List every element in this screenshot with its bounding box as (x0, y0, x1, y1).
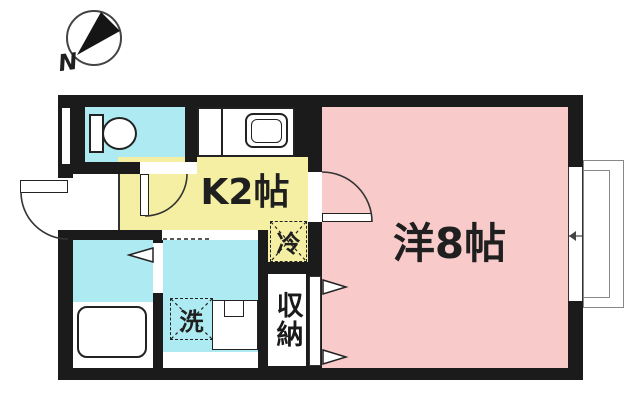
compass-north-label: N (48, 46, 88, 81)
washing-machine-space: 洗 (170, 298, 213, 340)
washbasin-bowl (224, 300, 244, 317)
wall-toilet-bottom (58, 162, 140, 174)
toilet-window (62, 108, 70, 164)
kitchen-label: K2帖 (180, 166, 310, 212)
wall-bath-top (58, 230, 162, 240)
wall-bottom (58, 368, 583, 380)
washing-machine-label: 洗 (180, 302, 204, 337)
entrance-door-leaf (20, 180, 68, 193)
bath-door-opening (153, 243, 163, 293)
main-room-label: 洋8帖 (327, 212, 572, 268)
toilet-bowl (102, 117, 137, 150)
closet-label: 収納 (268, 291, 307, 349)
closet: 収納 (266, 272, 308, 368)
wall-left-lower (58, 230, 73, 380)
balcony-inner-frame (583, 170, 610, 298)
hall-kitchen-divider (118, 174, 120, 230)
refrigerator-space: 冷 (270, 221, 307, 262)
bathroom-floor (73, 240, 153, 302)
counter-divider (221, 107, 223, 157)
toilet-door-leaf (140, 174, 149, 216)
wall-toilet-right (185, 95, 197, 162)
closet-door-panels (309, 276, 321, 366)
refrigerator-label: 冷 (277, 224, 301, 259)
kitchen-sink-basin (251, 119, 282, 143)
floor-plan: 収納 冷 洗 K2帖 (0, 0, 640, 416)
kitchen-door-opening (308, 172, 322, 222)
bathtub (77, 306, 147, 358)
washroom-entry-opening (162, 230, 258, 240)
